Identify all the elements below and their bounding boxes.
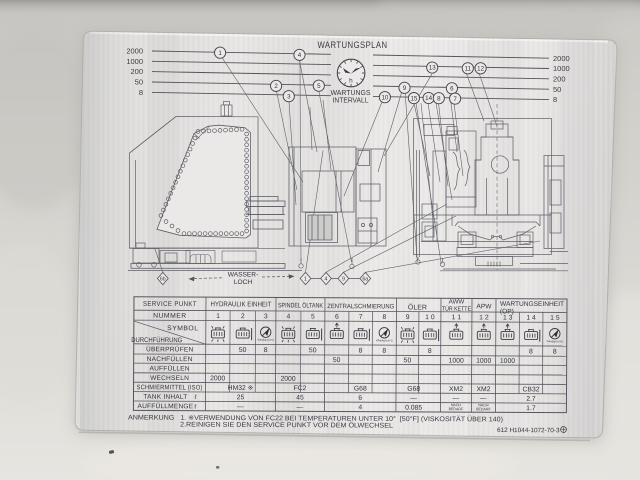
svg-text:3: 3: [264, 313, 268, 320]
svg-text:BEDARF: BEDARF: [449, 407, 464, 411]
svg-text:WASSER-: WASSER-: [228, 272, 259, 279]
svg-text:25: 25: [237, 394, 245, 401]
svg-text:INTERVALL: INTERVALL: [333, 96, 369, 105]
svg-text:6: 6: [335, 314, 339, 321]
svg-text:8: 8: [553, 348, 557, 355]
svg-text:AUFFÜLLMENGE: AUFFÜLLMENGE: [137, 402, 193, 410]
svg-text:2.REINIGEN SIE DEN SERVICE PUN: 2.REINIGEN SIE DEN SERVICE PUNKT VOR DEM…: [180, 421, 393, 430]
svg-text:10: 10: [381, 94, 388, 101]
svg-text:DURCHFÜHRUNG: DURCHFÜHRUNG: [131, 336, 182, 344]
svg-text:1: 1: [216, 313, 220, 320]
svg-text:12: 12: [477, 66, 484, 73]
svg-text:2.7: 2.7: [526, 396, 536, 403]
svg-text:1: 1: [304, 276, 307, 282]
svg-text:G68: G68: [354, 385, 367, 392]
svg-text:7: 7: [359, 314, 363, 321]
svg-text:8: 8: [437, 95, 441, 102]
svg-text:8: 8: [553, 95, 557, 104]
svg-text:SCHMIERMITTEL (ISO): SCHMIERMITTEL (ISO): [137, 384, 203, 391]
svg-text:SERVICE PUNKT: SERVICE PUNKT: [143, 301, 197, 308]
svg-text:45: 45: [296, 395, 304, 402]
svg-text:0.085: 0.085: [405, 405, 422, 412]
svg-text:8: 8: [382, 314, 386, 321]
svg-text:6b: 6b: [160, 276, 166, 282]
svg-text:—: —: [237, 404, 244, 411]
svg-text:7: 7: [453, 96, 457, 103]
svg-text:5: 5: [317, 83, 321, 90]
svg-text:2000: 2000: [210, 375, 225, 382]
svg-text:8: 8: [264, 347, 268, 354]
svg-text:1.7: 1.7: [526, 405, 536, 412]
svg-text:4: 4: [325, 276, 328, 282]
svg-text:4: 4: [286, 313, 290, 320]
svg-text:AWW: AWW: [449, 298, 465, 305]
svg-text:2: 2: [241, 313, 245, 320]
svg-text:50: 50: [239, 347, 247, 354]
svg-text:1: 1: [218, 50, 222, 57]
svg-text:APW: APW: [476, 303, 492, 310]
svg-text:1 1: 1 1: [452, 314, 462, 321]
svg-text:8: 8: [382, 348, 386, 355]
svg-text:50: 50: [309, 347, 317, 354]
svg-text:BEDARF: BEDARF: [476, 407, 491, 411]
svg-text:4: 4: [298, 52, 302, 59]
svg-text:6: 6: [450, 86, 454, 93]
svg-text:9: 9: [342, 276, 345, 282]
svg-text:1000: 1000: [553, 64, 570, 73]
svg-text:XM2: XM2: [449, 386, 463, 393]
svg-text:ℓ: ℓ: [194, 394, 196, 401]
svg-text:NACHFÜLLEN: NACHFÜLLEN: [147, 355, 193, 363]
svg-text:2000: 2000: [553, 54, 570, 63]
svg-text:G68: G68: [407, 386, 420, 393]
svg-text:2000: 2000: [280, 376, 295, 383]
svg-text:1 2: 1 2: [479, 314, 489, 321]
svg-text:50: 50: [404, 357, 412, 364]
svg-text:8: 8: [359, 347, 363, 354]
svg-text:11: 11: [465, 66, 472, 73]
svg-text:—: —: [453, 395, 460, 402]
svg-text:HM32 ※: HM32 ※: [228, 385, 254, 392]
svg-text:1000: 1000: [476, 358, 491, 365]
svg-text:1000: 1000: [126, 57, 143, 66]
svg-text:SPINDEL ÖLTANK: SPINDEL ÖLTANK: [278, 301, 324, 309]
svg-text:8: 8: [529, 348, 533, 355]
svg-text:ZENTRALSCHMIERUNG: ZENTRALSCHMIERUNG: [327, 303, 394, 310]
svg-text:200: 200: [553, 74, 566, 83]
svg-text:8: 8: [428, 348, 432, 355]
svg-text:50: 50: [333, 357, 341, 364]
svg-text:2: 2: [274, 83, 278, 90]
svg-text:1000: 1000: [500, 358, 515, 365]
svg-text:NUMMER: NUMMER: [153, 313, 187, 320]
svg-text:9: 9: [406, 314, 410, 321]
svg-text:TÜR KETTE: TÜR KETTE: [442, 306, 471, 313]
svg-text:9: 9: [403, 85, 407, 92]
svg-text:6: 6: [358, 395, 362, 402]
svg-text:Wka(kg/(cm²)): Wka(kg/(cm²)): [257, 338, 274, 342]
svg-text:WARTUNGSEINHEIT: WARTUNGSEINHEIT: [500, 301, 564, 308]
svg-text:WARTUNGSPLAN: WARTUNGSPLAN: [318, 40, 388, 50]
svg-text:HYDRAULIK EINHEIT: HYDRAULIK EINHEIT: [210, 301, 272, 308]
svg-text:ℓ: ℓ: [194, 403, 196, 410]
svg-text:13: 13: [429, 65, 436, 72]
svg-text:ÜBERPRÜFEN: ÜBERPRÜFEN: [146, 345, 194, 353]
svg-text:XM2: XM2: [477, 386, 491, 393]
svg-text:1 3: 1 3: [503, 315, 513, 322]
svg-text:3: 3: [287, 93, 291, 100]
svg-text:15: 15: [410, 95, 417, 102]
svg-text:AUFFÜLLEN: AUFFÜLLEN: [149, 364, 189, 372]
svg-text:—: —: [480, 396, 487, 403]
svg-text:50: 50: [553, 85, 561, 94]
svg-text:—: —: [410, 395, 417, 402]
svg-text:Wka(kg/(cm²)): Wka(kg/(cm²)): [547, 339, 564, 343]
svg-text:8: 8: [139, 88, 143, 97]
svg-text:2000: 2000: [126, 47, 143, 56]
svg-text:6a: 6a: [362, 276, 368, 282]
svg-text:CB32: CB32: [522, 386, 539, 393]
svg-text:—: —: [297, 404, 304, 411]
svg-text:5: 5: [311, 314, 315, 321]
svg-text:4: 4: [358, 404, 362, 411]
svg-text:h: h: [349, 78, 353, 85]
svg-text:Wka(kg/(cm²)): Wka(kg/(cm²)): [376, 338, 393, 342]
svg-text:50: 50: [135, 78, 143, 87]
svg-text:FC2: FC2: [294, 385, 307, 392]
svg-text:612 H1044-1072-70-3: 612 H1044-1072-70-3: [497, 427, 560, 434]
svg-text:WECHSELN: WECHSELN: [150, 375, 189, 382]
svg-text:200: 200: [130, 67, 143, 76]
svg-text:TANK INHALT: TANK INHALT: [143, 394, 187, 401]
svg-text:ÖLER: ÖLER: [408, 303, 427, 311]
svg-text:SYMBOL: SYMBOL: [167, 325, 198, 332]
svg-text:1 0: 1 0: [425, 314, 435, 321]
svg-text:1 4: 1 4: [526, 315, 536, 322]
svg-text:1000: 1000: [449, 358, 464, 365]
svg-text:LOCH: LOCH: [234, 279, 253, 286]
svg-text:1 5: 1 5: [550, 315, 560, 322]
svg-text:14: 14: [425, 95, 432, 102]
